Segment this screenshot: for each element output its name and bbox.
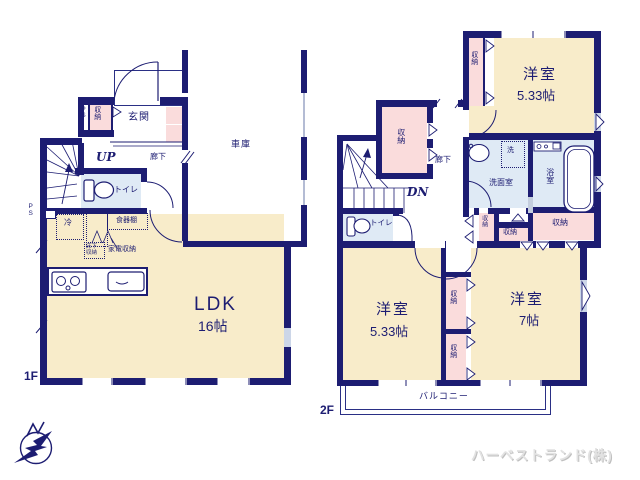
- toilet-icon: [84, 180, 94, 201]
- room2-door-arc: [446, 248, 477, 279]
- room-label-genkan: 玄関: [128, 112, 150, 123]
- bathtub-icon: [564, 146, 594, 212]
- room-label-yoshitsu3: 洋室: [376, 302, 410, 319]
- room-size-ldk: 16帖: [198, 319, 228, 334]
- door-chevron-icon: [566, 242, 578, 250]
- fold-door-icon: [92, 231, 102, 243]
- door-chevron-icon: [465, 215, 473, 227]
- toilet-icon: [354, 219, 370, 233]
- down-arrow-icon: [363, 148, 371, 158]
- appliance-label: 家電収納: [108, 246, 136, 254]
- floor-tag-2f: 2F: [320, 404, 334, 417]
- closet-label-top: 収納: [470, 51, 478, 65]
- cupboard-label: 食器棚: [116, 217, 137, 225]
- bath-counter-icon: [553, 143, 560, 149]
- door-chevron-icon: [467, 336, 475, 348]
- room-label-garage: 車庫: [231, 140, 251, 150]
- room-size-yoshitsu1: 5.33帖: [517, 89, 555, 103]
- closet-label-a: 収納: [480, 215, 487, 227]
- door-chevron-icon: [467, 279, 475, 291]
- door-chevron-icon: [113, 107, 121, 117]
- door-chevron-icon: [596, 177, 603, 191]
- door-chevron-icon: [429, 124, 437, 136]
- door-chevron-icon: [537, 242, 549, 250]
- washer-label: 洗: [507, 147, 514, 155]
- compass-icon: [10, 418, 66, 476]
- washroom-door-arc: [465, 181, 491, 207]
- door-chevron-icon: [467, 317, 475, 329]
- floor-plan: LDK16帖玄関車庫トイレ廊下UP収納PSPS冷食器棚家電収納床下収納1F洋室5…: [0, 0, 640, 480]
- closet-label-mid: 収納: [396, 128, 405, 144]
- room-label-yoshitsu1: 洋室: [523, 67, 557, 84]
- line: [47, 184, 77, 188]
- line: [343, 144, 347, 170]
- room-size-yoshitsu3: 5.33帖: [370, 325, 408, 339]
- line: [181, 151, 190, 163]
- closet-label-bath: 収納: [552, 219, 568, 228]
- stairs-label-up: UP: [96, 151, 116, 164]
- line: [62, 170, 69, 204]
- floor-tag-1f: 1F: [24, 370, 38, 383]
- closet-label-1f: 収納: [93, 106, 101, 120]
- room-label-hall-1f: 廊下: [150, 153, 166, 162]
- line: [347, 144, 358, 188]
- kitchen-sink-icon: [108, 272, 144, 291]
- line: [47, 196, 77, 199]
- room-label-toilet-2f: トイレ: [370, 219, 393, 227]
- room-label-ldk: LDK: [194, 295, 237, 316]
- line: [433, 99, 440, 108]
- line: [455, 99, 462, 108]
- entrance-door-arc: [114, 62, 158, 101]
- door-chevron-icon: [467, 368, 475, 380]
- ps-label-left: PS: [27, 203, 34, 217]
- line: [36, 240, 47, 253]
- door-chevron-icon: [486, 40, 494, 52]
- closet-label-1: 収納: [449, 290, 457, 304]
- line: [185, 152, 194, 164]
- balcony-label: バルコニー: [419, 392, 469, 402]
- toilet2-door-arc: [398, 215, 412, 242]
- toilet1-door-arc: [147, 182, 173, 208]
- room-size-yoshitsu2: 7帖: [519, 314, 539, 328]
- door-chevron-icon: [582, 282, 590, 310]
- door-chevron-icon: [521, 242, 533, 250]
- room1-door-arc: [469, 110, 496, 137]
- door-chevron-icon: [512, 214, 524, 221]
- underfloor-label: 床下収納: [85, 244, 98, 256]
- ldk-door-arc: [150, 210, 182, 242]
- closet-label-2: 収納: [449, 344, 457, 358]
- door-chevron-icon: [596, 114, 604, 130]
- room-label-washroom: 洗面室: [489, 179, 513, 188]
- company-watermark: ハーベストランド(株): [471, 444, 613, 464]
- room3-door-arc: [415, 248, 445, 278]
- door-chevron-icon: [465, 231, 473, 243]
- line: [36, 320, 47, 333]
- stairs-label-dn: DN: [407, 186, 428, 199]
- fold-door-icon: [103, 231, 113, 243]
- closet-label-b: 収納: [503, 229, 517, 237]
- room-label-hall-2f: 廊下: [435, 156, 451, 165]
- ps-label-top: PS: [80, 107, 87, 119]
- toilet-icon: [95, 182, 114, 198]
- room-label-yoshitsu2: 洋室: [510, 292, 544, 309]
- fridge-label: 冷: [64, 219, 72, 228]
- line: [360, 154, 367, 178]
- door-chevron-icon: [486, 92, 494, 104]
- room-label-bath: 浴室: [545, 168, 554, 184]
- room-label-toilet-1f: トイレ: [114, 186, 138, 195]
